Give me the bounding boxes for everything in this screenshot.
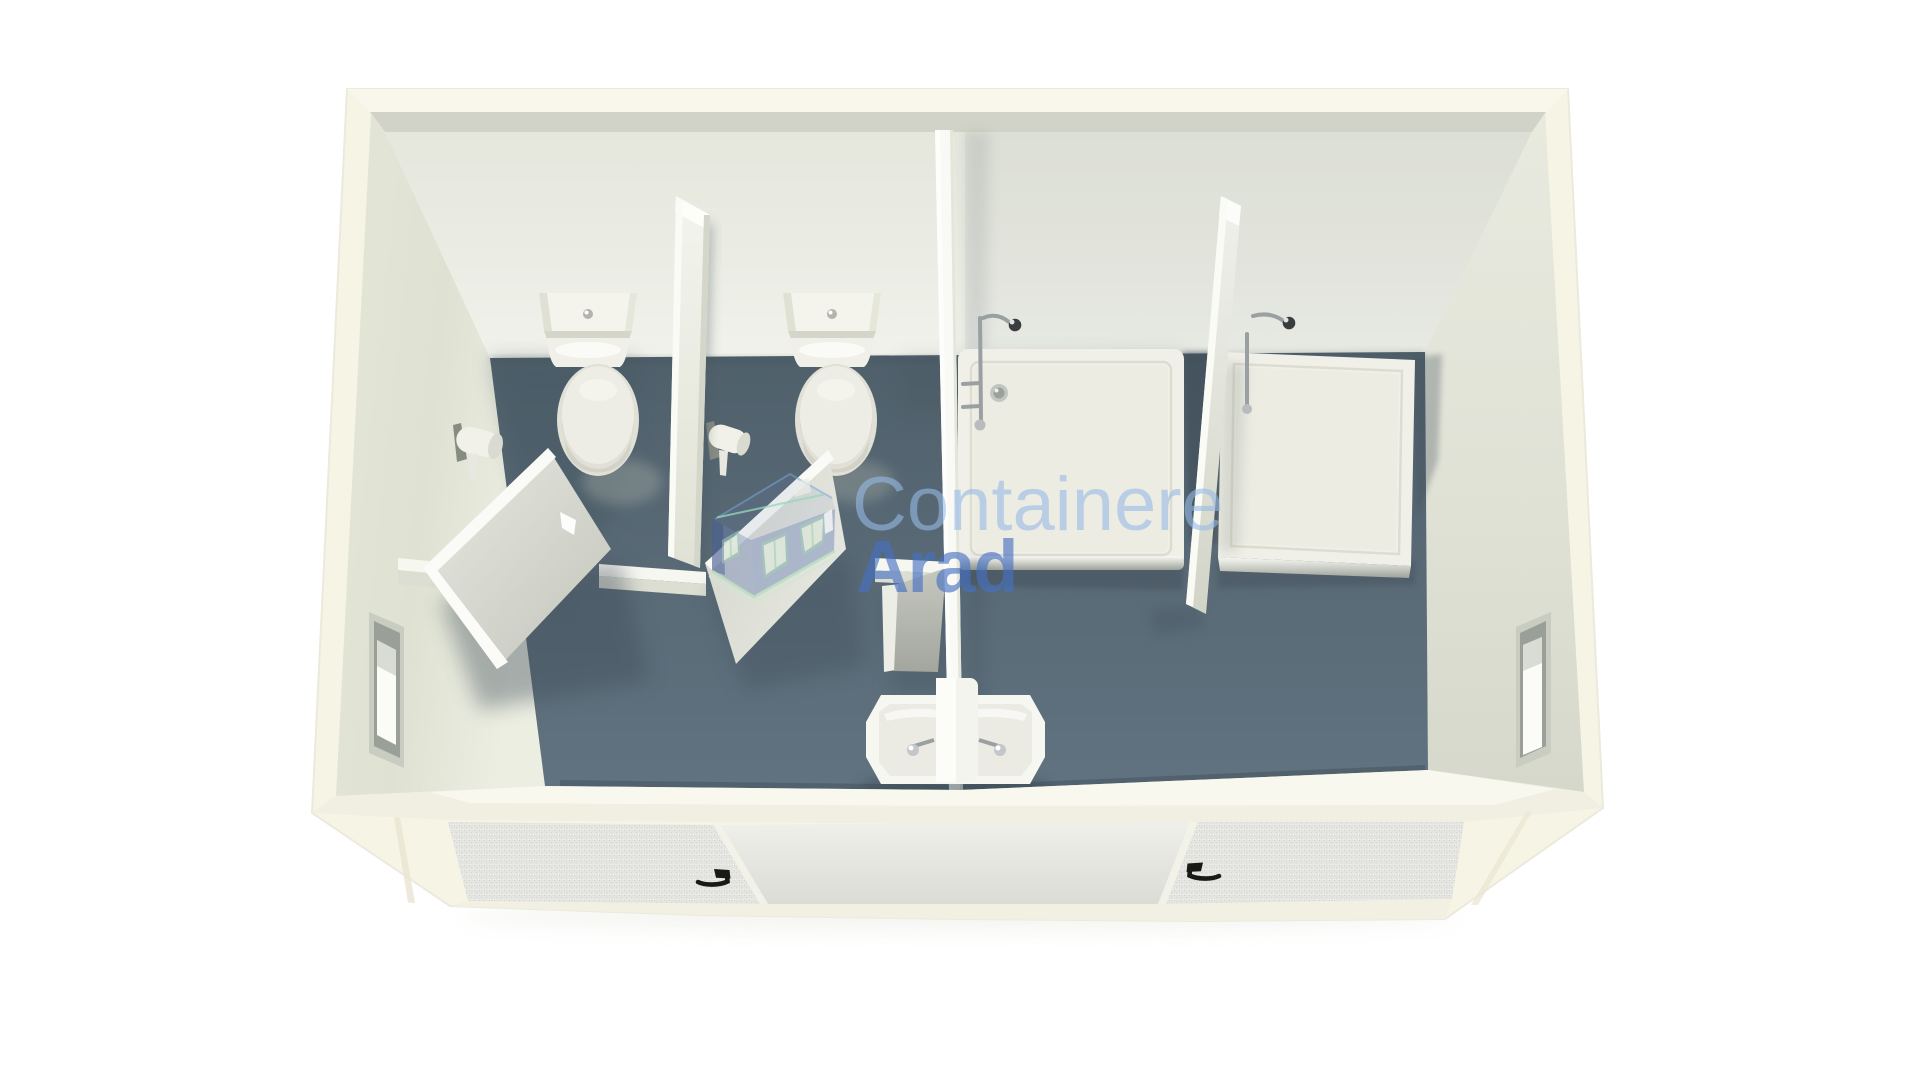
svg-text:Arad: Arad <box>856 525 1017 608</box>
